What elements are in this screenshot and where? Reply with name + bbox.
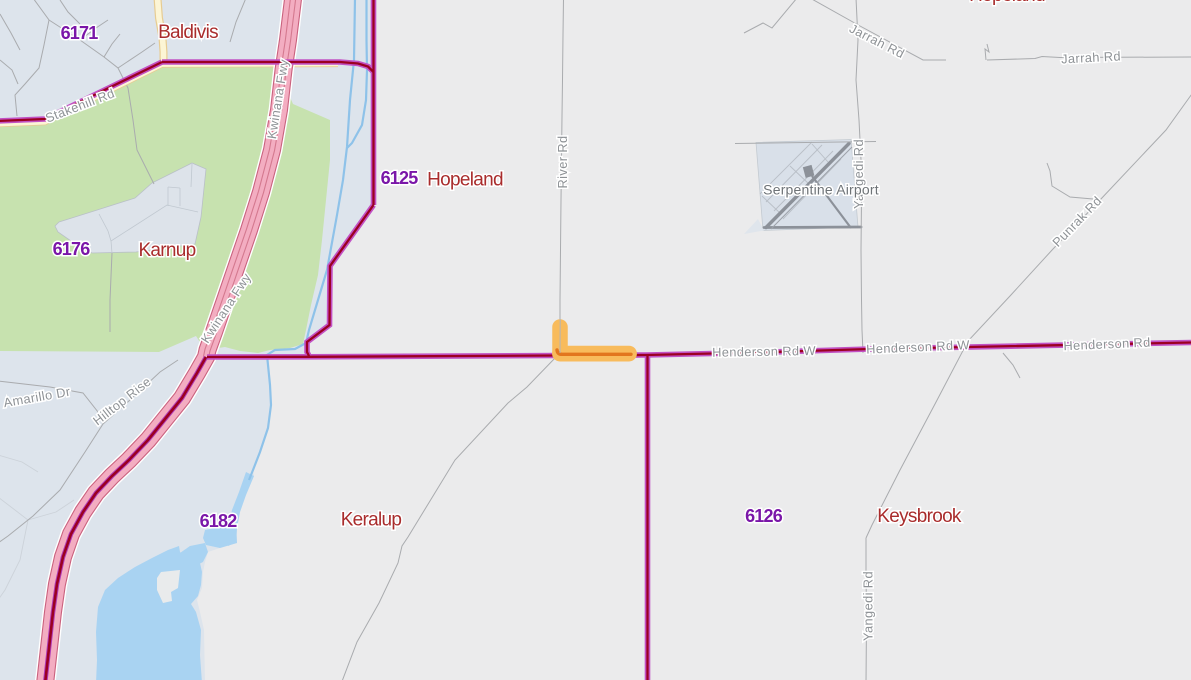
svg-text:Yangedi Rd: Yangedi Rd — [860, 571, 875, 641]
svg-text:Karnup: Karnup — [138, 240, 195, 261]
svg-text:River Rd: River Rd — [555, 136, 570, 189]
svg-text:Keysbrook: Keysbrook — [877, 506, 962, 527]
svg-text:6171: 6171 — [61, 23, 99, 43]
svg-text:Baldivis: Baldivis — [158, 22, 218, 43]
svg-text:Yangedi Rd: Yangedi Rd — [851, 139, 866, 209]
svg-text:Henderson Rd W: Henderson Rd W — [712, 343, 817, 360]
svg-text:Hopeland: Hopeland — [969, 0, 1045, 6]
svg-text:6182: 6182 — [200, 511, 238, 531]
svg-text:6126: 6126 — [745, 506, 783, 526]
svg-text:6125: 6125 — [381, 168, 419, 188]
svg-text:Hopeland: Hopeland — [427, 170, 503, 191]
svg-text:Jarrah Rd: Jarrah Rd — [1061, 48, 1122, 66]
svg-text:6176: 6176 — [53, 239, 91, 259]
svg-text:Keralup: Keralup — [341, 510, 402, 531]
svg-text:Serpentine Airport: Serpentine Airport — [763, 181, 879, 197]
